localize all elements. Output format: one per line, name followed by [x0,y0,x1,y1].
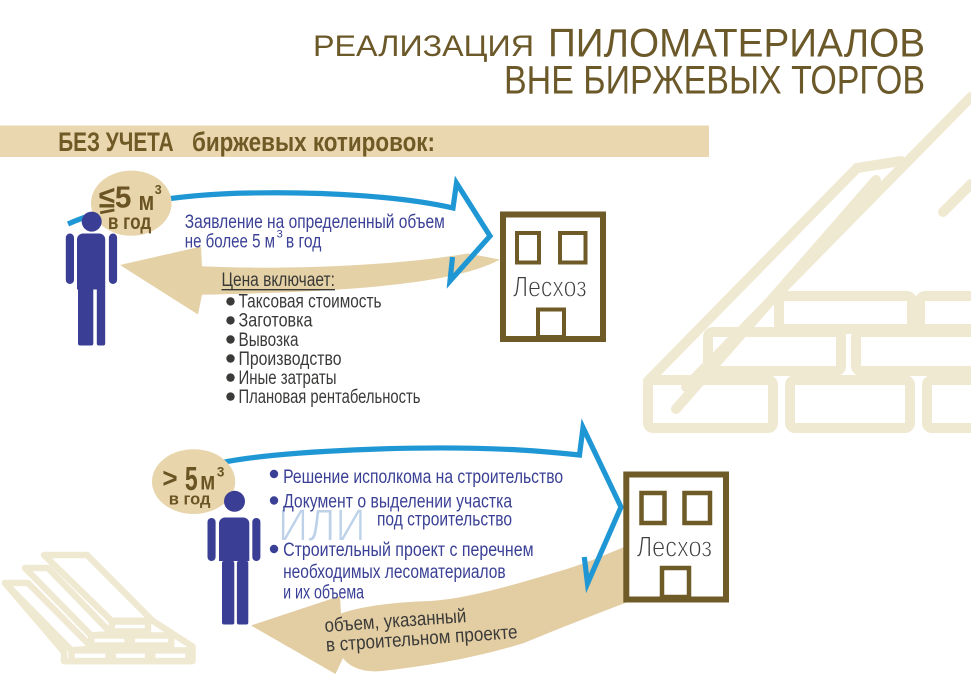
svg-text:Лесхоз: Лесхоз [637,532,712,564]
svg-text:в год: в год [108,210,152,234]
svg-text:и их объема: и их объема [283,582,364,603]
svg-text:3: 3 [277,229,283,241]
svg-text:Решение исполкома на строитель: Решение исполкома на строительство [283,467,563,488]
svg-text:БЕЗ УЧЕТА: БЕЗ УЧЕТА [58,127,173,157]
svg-text:3: 3 [155,183,162,197]
svg-text:Лесхоз: Лесхоз [513,272,587,304]
svg-text:Строительный проект с перечнем: Строительный проект с перечнем [283,540,533,561]
svg-text:РЕАЛИЗАЦИЯ: РЕАЛИЗАЦИЯ [313,30,534,63]
svg-text:Таксовая стоимость: Таксовая стоимость [239,292,382,313]
svg-text:не более 5 м: не более 5 м [185,231,275,253]
svg-text:Заявление на определенный объе: Заявление на определенный объем [185,211,445,233]
svg-text:под строительство: под строительство [377,510,512,531]
svg-text:необходимых лесоматериалов: необходимых лесоматериалов [283,562,506,583]
svg-text:ВНЕ БИРЖЕВЫХ ТОРГОВ: ВНЕ БИРЖЕВЫХ ТОРГОВ [504,59,925,103]
svg-text:биржевых котировок:: биржевых котировок: [192,127,435,157]
svg-text:Производство: Производство [239,349,342,370]
svg-text:3: 3 [217,465,225,480]
svg-text:в год: в год [286,231,322,253]
svg-text:в год: в год [169,490,211,509]
svg-text:Иные затраты: Иные затраты [239,368,337,389]
svg-text:Вывозка: Вывозка [239,330,299,351]
svg-text:Плановая рентабельность: Плановая рентабельность [239,387,421,408]
svg-text:Заготовка: Заготовка [239,311,313,332]
svg-text:Цена включает:: Цена включает: [222,270,335,291]
